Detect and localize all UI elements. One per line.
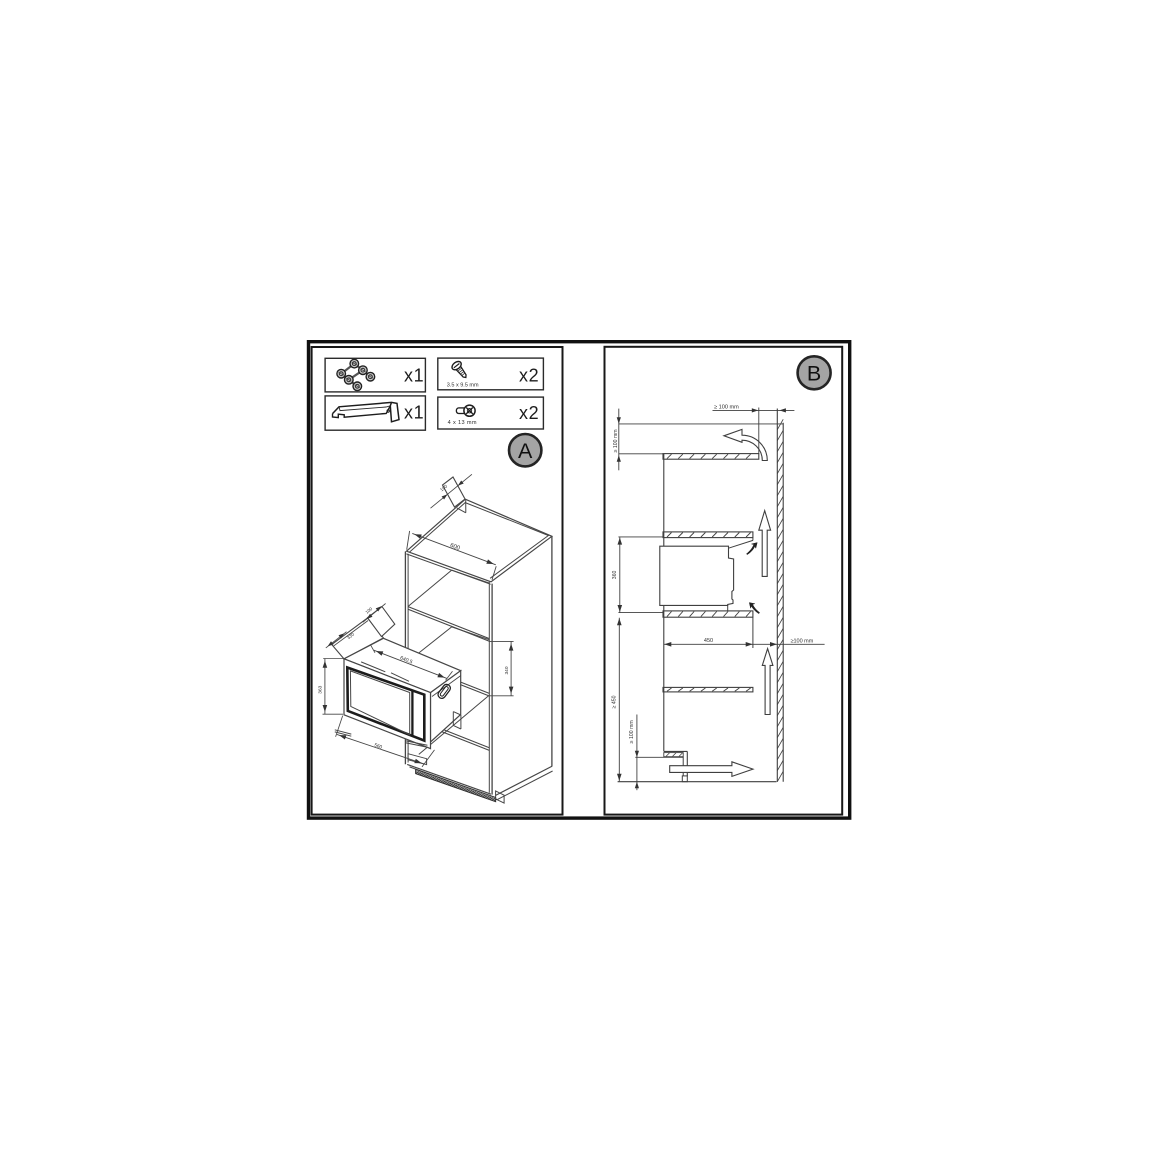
svg-text:340: 340: [504, 666, 510, 674]
svg-text:x2: x2: [519, 365, 539, 385]
svg-text:≥100 mm: ≥100 mm: [790, 638, 813, 644]
svg-text:4 x 13 mm: 4 x 13 mm: [448, 420, 477, 426]
svg-text:x2: x2: [519, 403, 539, 423]
svg-text:450: 450: [704, 638, 713, 644]
svg-text:≥ 100 mm: ≥ 100 mm: [629, 720, 635, 743]
svg-text:363: 363: [318, 685, 324, 693]
svg-text:x1: x1: [404, 402, 424, 422]
svg-text:≥ 100 mm: ≥ 100 mm: [714, 405, 739, 411]
svg-text:B: B: [807, 362, 821, 386]
svg-text:≥ 100 mm: ≥ 100 mm: [613, 429, 619, 452]
svg-text:≥ 450: ≥ 450: [611, 695, 617, 708]
svg-text:3.5 x 9.5 mm: 3.5 x 9.5 mm: [447, 383, 479, 389]
svg-text:x1: x1: [404, 365, 424, 385]
svg-text:360: 360: [612, 570, 618, 579]
svg-text:A: A: [518, 439, 533, 463]
